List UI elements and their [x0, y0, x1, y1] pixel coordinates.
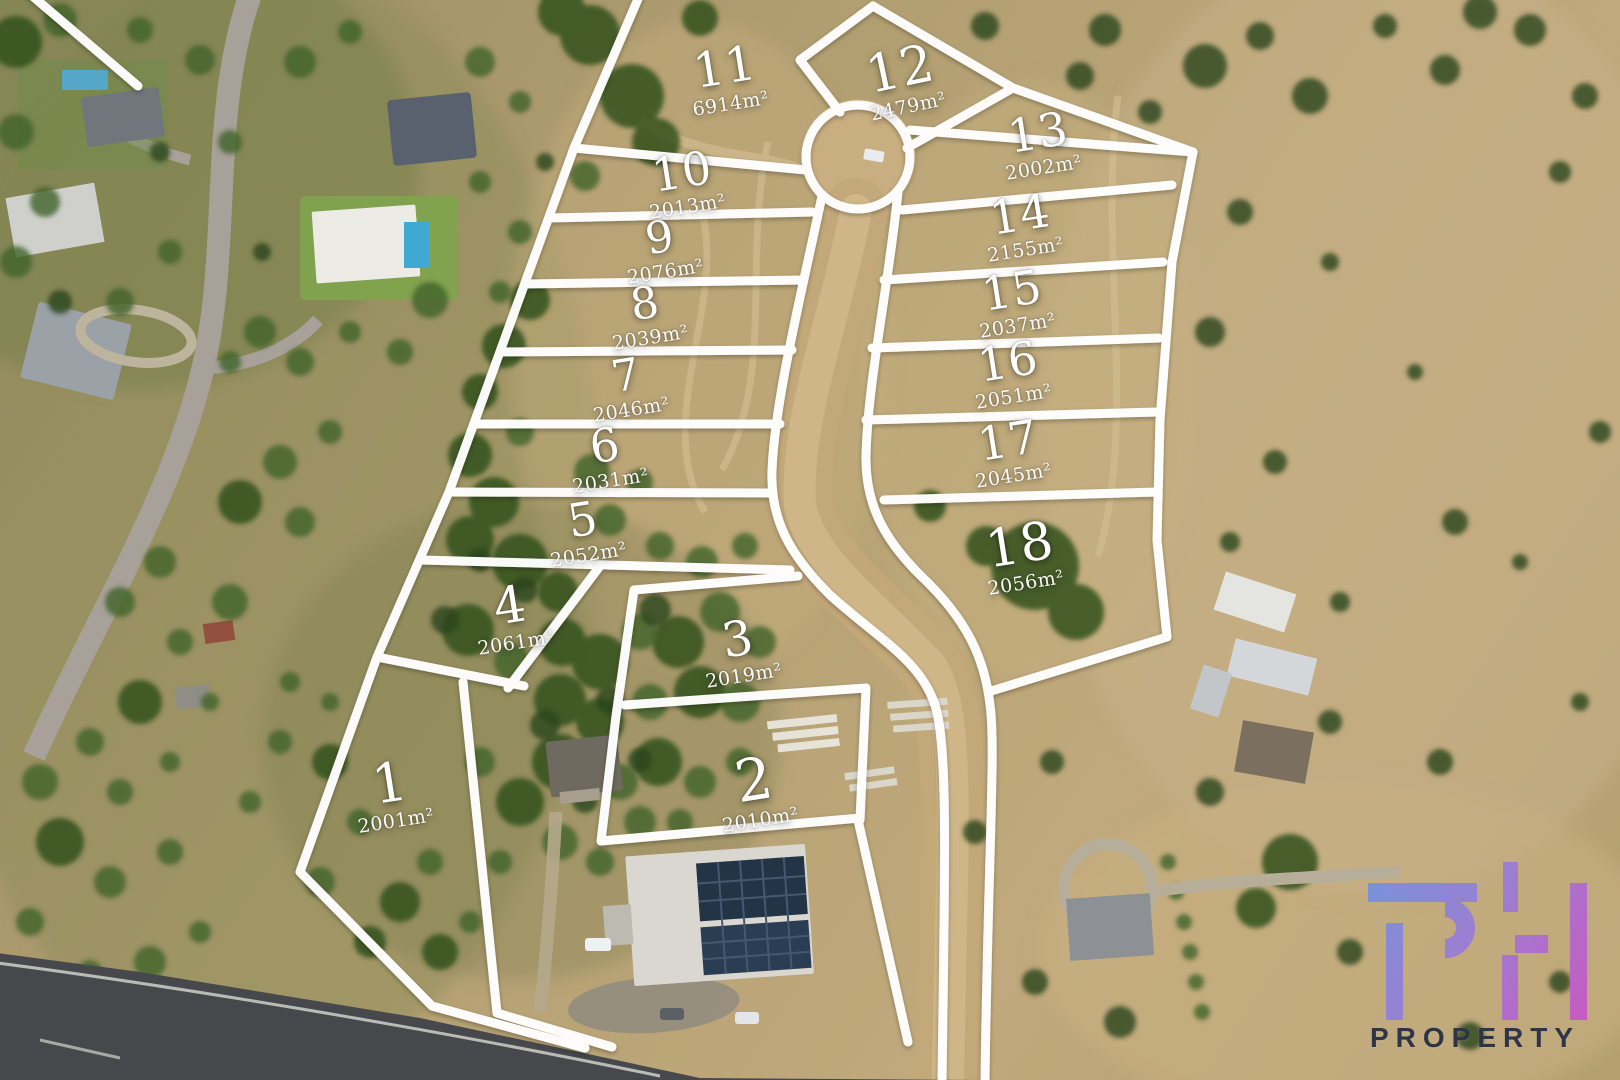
ph-logo-mark — [1345, 840, 1605, 1020]
h-left-top-bar — [1503, 862, 1518, 912]
lot-label-15: 152037m² — [971, 264, 1058, 343]
lot-label-8: 82039m² — [604, 277, 690, 354]
lot-number: 2 — [712, 747, 797, 813]
p-top-bar — [1368, 883, 1477, 902]
lot-label-2: 22010m² — [712, 747, 800, 837]
lot-label-6: 62031m² — [564, 419, 651, 498]
p-bowl-arc — [1445, 898, 1475, 958]
lot-label-11: 116914m² — [684, 40, 771, 121]
lot-label-17: 172045m² — [967, 414, 1054, 493]
lot-label-18: 182056m² — [978, 516, 1066, 601]
lot-label-13: 132002m² — [997, 106, 1084, 185]
lot-label-12: 122479m² — [858, 38, 949, 126]
h-cross-bar — [1515, 935, 1548, 953]
aerial-subdivision-photo: 12001m² 22010m² 32019m² 42061m² 52052m² … — [0, 0, 1620, 1080]
lot-label-1: 12001m² — [348, 752, 436, 838]
lot-label-9: 92076m² — [619, 211, 705, 288]
lot-label-5: 52052m² — [542, 493, 629, 572]
lot-label-14: 142155m² — [979, 188, 1066, 267]
lot-label-7: 72046m² — [585, 349, 671, 426]
h-left-bottom-bar — [1502, 955, 1518, 1020]
p-stem-bar — [1386, 923, 1403, 1020]
ph-property-logo: PROPERTY — [1345, 840, 1605, 1070]
lot-label-16: 162051m² — [967, 335, 1054, 414]
h-right-bar — [1570, 883, 1587, 1020]
lot-label-4: 42061m² — [468, 577, 555, 660]
ph-logo-wordmark: PROPERTY — [1345, 1022, 1605, 1054]
lot-label-3: 32019m² — [697, 612, 784, 693]
lot-label-10: 102013m² — [641, 145, 728, 224]
